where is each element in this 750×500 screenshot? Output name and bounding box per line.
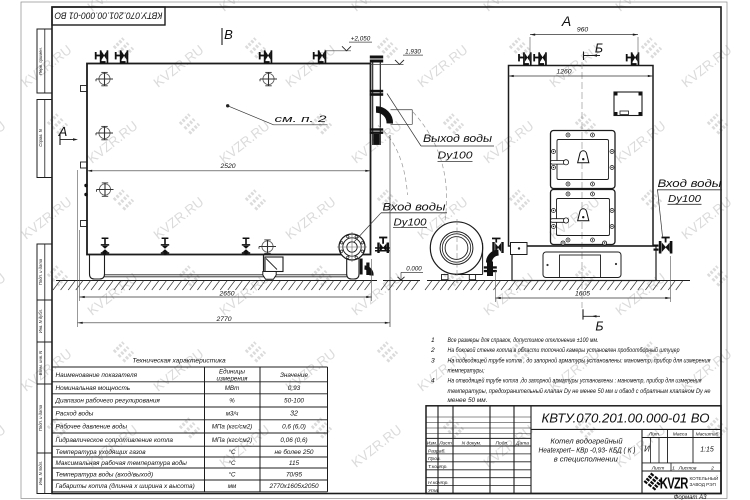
svg-text:см. п. 2: см. п. 2: [275, 114, 328, 125]
svg-text:Dy100: Dy100: [394, 217, 428, 228]
svg-text:На отводящей трубе котла ,до з: На отводящей трубе котла ,до запорной ар…: [448, 377, 702, 385]
svg-text:Изм.: Изм.: [427, 440, 437, 446]
svg-text:На подводящей трубе котла ,: На подводящей трубе котла , до запорной …: [448, 356, 711, 364]
svg-text:Dy100: Dy100: [438, 151, 473, 162]
svg-text:Подп. и дата: Подп. и дата: [38, 404, 43, 431]
svg-text:4: 4: [431, 378, 435, 385]
svg-text:Листов: Листов: [678, 465, 697, 471]
svg-text:измерения: измерения: [217, 375, 249, 382]
svg-text:2770х1605х2050: 2770х1605х2050: [268, 483, 318, 490]
svg-text:0,93: 0,93: [288, 385, 301, 392]
svg-text:МВт: МВт: [225, 385, 239, 392]
svg-text:N докум.: N докум.: [462, 440, 482, 446]
svg-text:Номинальная мощность: Номинальная мощность: [56, 385, 131, 392]
svg-text:%: %: [229, 398, 235, 405]
svg-text:2520: 2520: [219, 163, 235, 170]
svg-text:Б: Б: [595, 320, 603, 334]
svg-text:в специсполнении: в специсполнении: [554, 455, 619, 464]
svg-text:°С: °С: [229, 471, 236, 478]
svg-text:+2,050: +2,050: [351, 36, 371, 43]
svg-text:Техническая характеристика: Техническая характеристика: [132, 358, 226, 365]
svg-text:Значение: Значение: [280, 372, 308, 379]
svg-text:Взам. инв. N: Взам. инв. N: [38, 350, 43, 375]
svg-text:Дата: Дата: [515, 440, 529, 446]
svg-text:Диапазон рабочего регулировани: Диапазон рабочего регулирования: [55, 397, 161, 405]
svg-text:КВТУ.070.201.00.000-01 ВО: КВТУ.070.201.00.000-01 ВО: [55, 11, 163, 21]
svg-text:Масса: Масса: [673, 432, 688, 438]
svg-text:Пров.: Пров.: [428, 456, 441, 462]
svg-text:1:15: 1:15: [700, 447, 714, 454]
svg-text:КОТЕЛЬНЫЙ: КОТЕЛЬНЫЙ: [690, 474, 719, 481]
svg-text:Б: Б: [595, 42, 603, 56]
svg-text:115: 115: [289, 460, 300, 467]
svg-text:Температура уходящих газов: Температура уходящих газов: [56, 448, 147, 456]
svg-text:Heatexpert– КВр -0,93- КБД ( К: Heatexpert– КВр -0,93- КБД ( К ): [539, 446, 636, 455]
svg-text:Вход воды: Вход воды: [383, 202, 446, 214]
svg-text:МПа (кгс/см2): МПа (кгс/см2): [212, 437, 252, 444]
svg-text:Единицы: Единицы: [219, 368, 245, 375]
svg-text:1: 1: [431, 337, 435, 344]
svg-text:Инв. N подл.: Инв. N подл.: [38, 461, 43, 485]
svg-text:960: 960: [577, 27, 589, 34]
svg-text:Перв. примен.: Перв. примен.: [38, 47, 43, 75]
svg-text:KVZR: KVZR: [660, 475, 689, 492]
svg-text:°С: °С: [229, 460, 236, 467]
svg-text:0,06 (0,6): 0,06 (0,6): [280, 437, 307, 444]
svg-text:50-100: 50-100: [284, 398, 304, 405]
svg-text:70/95: 70/95: [286, 471, 302, 478]
svg-text:0.000: 0.000: [406, 266, 422, 273]
svg-text:3: 3: [431, 357, 435, 364]
svg-text:А: А: [561, 13, 571, 29]
svg-text:Температура воды (вход/выход): Температура воды (вход/выход): [56, 470, 154, 478]
svg-text:32: 32: [290, 411, 298, 418]
svg-text:Подп.: Подп.: [495, 440, 508, 446]
svg-text:2650: 2650: [218, 291, 234, 298]
svg-text:МПа (кгс/см2): МПа (кгс/см2): [212, 424, 252, 431]
svg-text:Н.контр.: Н.контр.: [428, 480, 449, 486]
svg-text:Расход воды: Расход воды: [56, 410, 94, 418]
svg-text:менее 50 мм.: менее 50 мм.: [448, 397, 488, 404]
svg-text:В: В: [224, 27, 233, 42]
svg-text:мм: мм: [228, 483, 237, 490]
svg-text:Котел водогрейный: Котел водогрейный: [550, 437, 623, 446]
svg-text:1: 1: [672, 465, 675, 471]
svg-text:1605: 1605: [575, 290, 590, 297]
svg-text:1260: 1260: [556, 69, 571, 76]
svg-text:°С: °С: [229, 449, 236, 456]
svg-text:2: 2: [430, 347, 435, 354]
svg-text:ЗАВОД РЭП: ЗАВОД РЭП: [690, 482, 716, 487]
svg-text:Вход воды: Вход воды: [658, 178, 722, 190]
svg-text:Наименование показателя: Наименование показателя: [56, 372, 138, 379]
svg-text:Формат А3: Формат А3: [674, 495, 707, 500]
svg-text:2770: 2770: [215, 316, 231, 323]
svg-text:Рабочее давление воды: Рабочее давление воды: [56, 423, 128, 431]
svg-text:Подп. и дата: Подп. и дата: [38, 258, 43, 285]
svg-text:Лист: Лист: [651, 465, 665, 471]
svg-text:Утв.: Утв.: [428, 488, 439, 494]
svg-text:КВТУ.070.201.00.000-01 ВО: КВТУ.070.201.00.000-01 ВО: [542, 410, 710, 425]
svg-text:температуры, предохранительный: температуры, предохранительный клапан Dy…: [448, 387, 711, 395]
svg-text:Dy100: Dy100: [668, 194, 702, 205]
svg-text:2: 2: [710, 465, 714, 471]
svg-text:Выход воды: Выход воды: [423, 133, 493, 145]
svg-text:И: И: [644, 445, 650, 454]
svg-text:Лист: Лист: [438, 440, 452, 446]
svg-text:Гидравлическое сопротивление к: Гидравлическое сопротивление котла: [56, 436, 174, 444]
svg-text:Масштаб: Масштаб: [696, 432, 719, 438]
svg-text:не более 250: не более 250: [274, 448, 313, 456]
svg-text:1,930: 1,930: [405, 49, 421, 56]
svg-text:А: А: [58, 124, 68, 139]
svg-text:м3/ч: м3/ч: [226, 411, 239, 418]
svg-text:Т.контр.: Т.контр.: [428, 464, 448, 470]
svg-text:Максимальная рабочая температу: Максимальная рабочая температура воды: [56, 459, 188, 467]
svg-text:0,6 (6,0): 0,6 (6,0): [282, 424, 306, 431]
svg-text:Все размеры для справок, допус: Все размеры для справок, допустимое откл…: [448, 336, 599, 344]
svg-text:Габариты котла (длинна х ширин: Габариты котла (длинна х ширина х высота…: [56, 482, 195, 490]
svg-text:Справ. N: Справ. N: [38, 128, 43, 146]
svg-text:Разраб.: Разраб.: [428, 448, 446, 454]
svg-text:Инв. N дубл.: Инв. N дубл.: [38, 309, 43, 333]
svg-text:Лит.: Лит.: [648, 432, 660, 438]
svg-text:На боковой стенке котла в обла: На боковой стенке котла в области топочн…: [448, 346, 680, 354]
svg-text:температуры;: температуры;: [448, 368, 485, 375]
